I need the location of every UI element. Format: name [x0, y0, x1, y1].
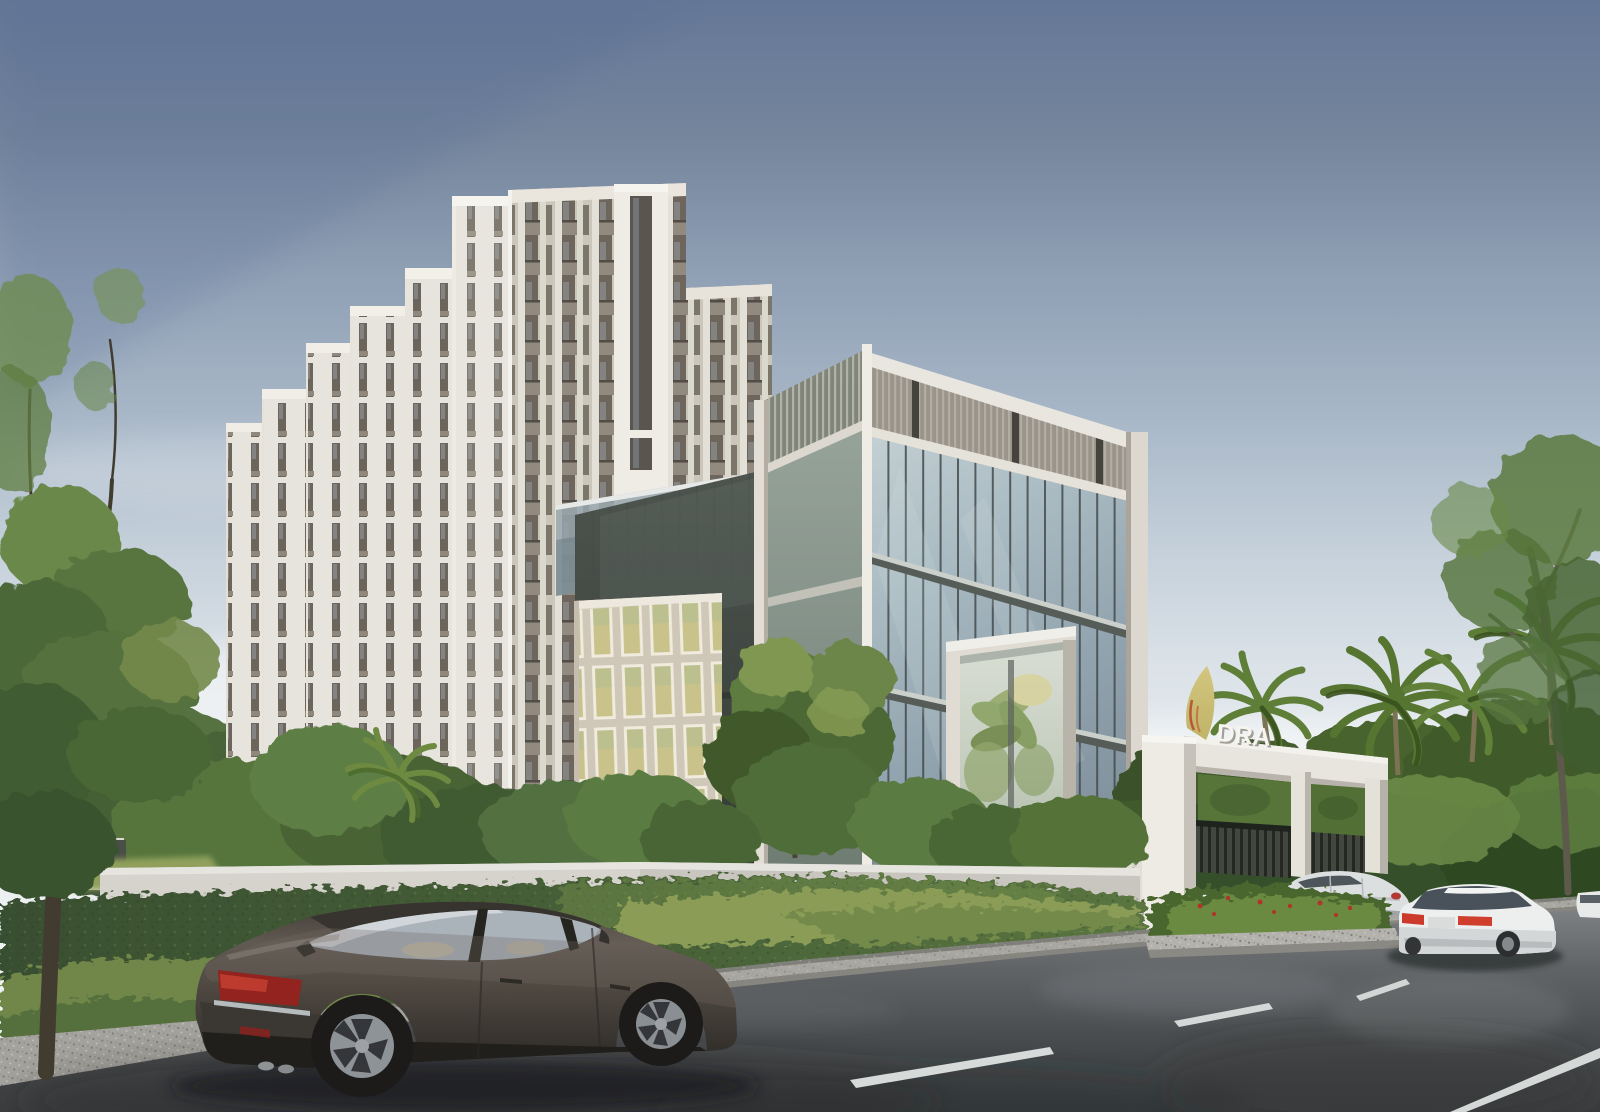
svg-text:DRA: DRA	[1215, 719, 1271, 752]
